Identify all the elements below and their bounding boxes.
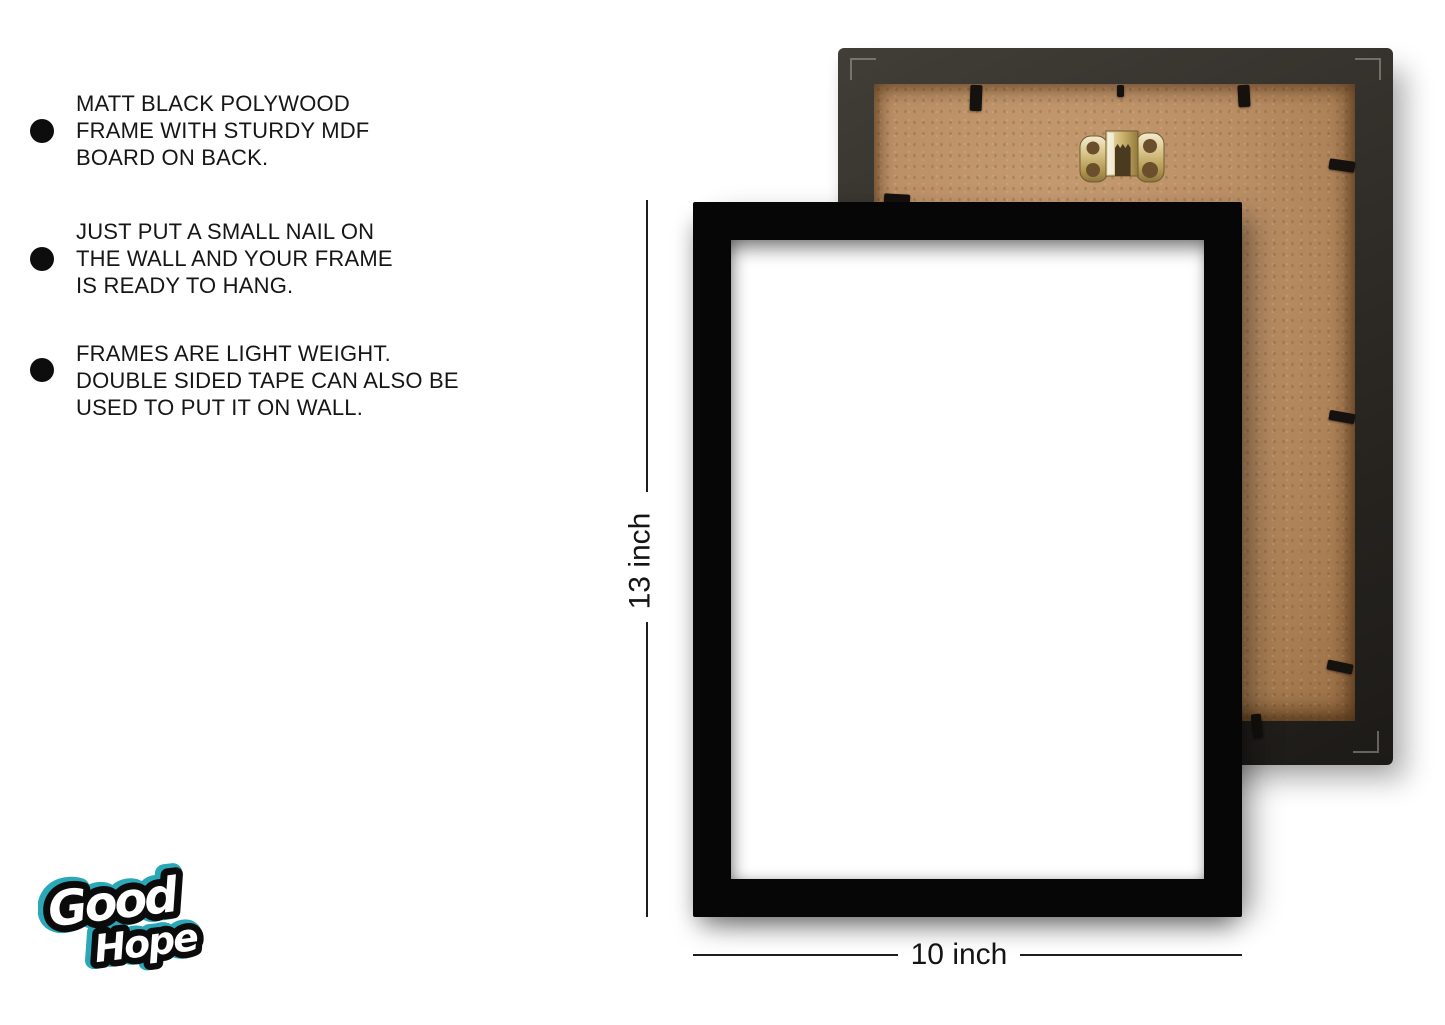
miter-mark-icon — [1355, 58, 1381, 80]
brand-logo: Good Hope Good Hope — [38, 862, 208, 980]
width-dimension-line — [693, 954, 898, 956]
feature-line: USED TO PUT IT ON WALL. — [76, 394, 459, 421]
bullet-icon — [30, 247, 54, 271]
hanging-hook-icon — [1078, 128, 1166, 184]
feature-line: MATT BLACK POLYWOOD — [76, 90, 369, 117]
width-dimension-line — [1020, 954, 1242, 956]
feature-item-lightweight: FRAMES ARE LIGHT WEIGHT. DOUBLE SIDED TA… — [30, 340, 459, 421]
feature-text: JUST PUT A SMALL NAIL ON THE WALL AND YO… — [76, 218, 393, 299]
feature-line: DOUBLE SIDED TAPE CAN ALSO BE — [76, 367, 459, 394]
feature-line: IS READY TO HANG. — [76, 272, 393, 299]
miter-mark-icon — [850, 58, 876, 80]
width-dimension-label: 10 inch — [911, 938, 1008, 971]
feature-text: MATT BLACK POLYWOOD FRAME WITH STURDY MD… — [76, 90, 369, 171]
width-dimension: 10 inch — [898, 938, 1020, 972]
feature-line: FRAME WITH STURDY MDF — [76, 117, 369, 144]
height-dimension-line — [646, 622, 648, 917]
retainer-clip — [1117, 85, 1124, 97]
feature-item-hanging: JUST PUT A SMALL NAIL ON THE WALL AND YO… — [30, 218, 393, 299]
frame-opening — [731, 240, 1204, 879]
feature-text: FRAMES ARE LIGHT WEIGHT. DOUBLE SIDED TA… — [76, 340, 459, 421]
bullet-icon — [30, 358, 54, 382]
height-dimension-label: 13 inch — [623, 513, 657, 610]
feature-line: JUST PUT A SMALL NAIL ON — [76, 218, 393, 245]
feature-line: FRAMES ARE LIGHT WEIGHT. — [76, 340, 459, 367]
height-dimension-line — [646, 200, 648, 492]
product-infographic: MATT BLACK POLYWOOD FRAME WITH STURDY MD… — [0, 0, 1445, 1025]
miter-mark-icon — [1353, 731, 1379, 753]
retainer-clip — [970, 85, 983, 111]
height-dimension: 13 inch — [575, 505, 705, 617]
retainer-clip — [1237, 85, 1250, 108]
bullet-icon — [30, 119, 54, 143]
frame-front-view — [693, 202, 1242, 917]
feature-item-material: MATT BLACK POLYWOOD FRAME WITH STURDY MD… — [30, 90, 369, 171]
feature-line: BOARD ON BACK. — [76, 144, 369, 171]
feature-line: THE WALL AND YOUR FRAME — [76, 245, 393, 272]
